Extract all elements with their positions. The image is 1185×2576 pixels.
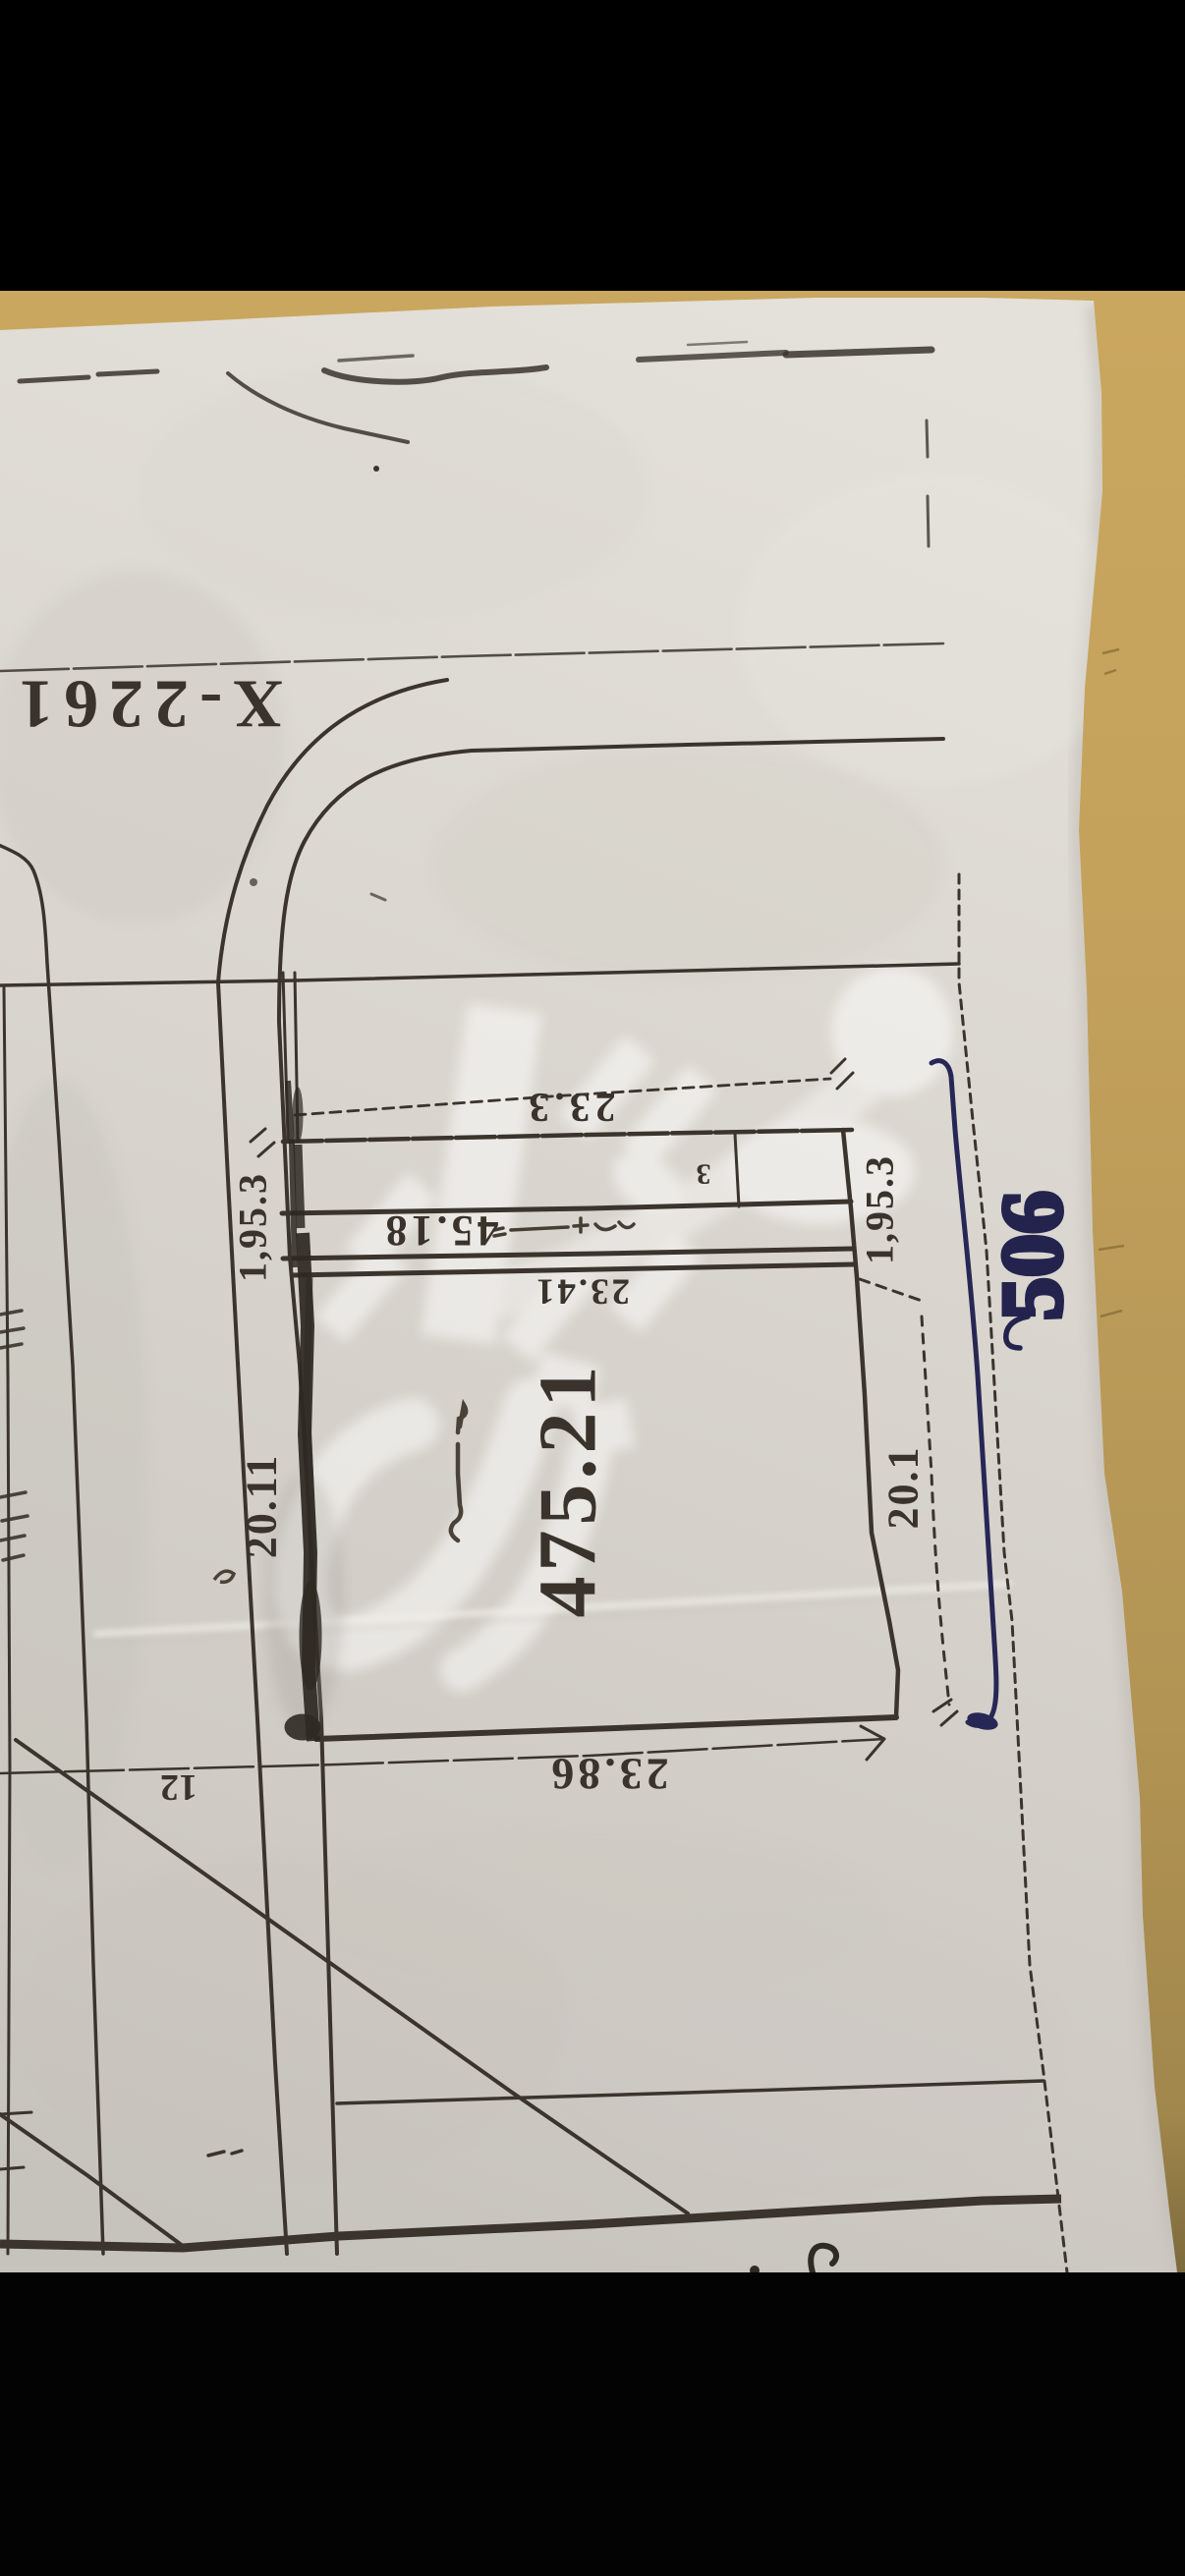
svg-text:1,95.3: 1,95.3 <box>858 1154 902 1264</box>
svg-text:506: 506 <box>986 1191 1081 1320</box>
svg-text:X-2261: X-2261 <box>8 666 283 742</box>
svg-text:23.3: 23.3 <box>524 1084 616 1129</box>
svg-text:20.11: 20.11 <box>238 1454 286 1559</box>
svg-text:475.21: 475.21 <box>523 1362 614 1618</box>
svg-text:23.86: 23.86 <box>547 1750 669 1800</box>
svg-text:20.1: 20.1 <box>879 1446 928 1530</box>
svg-text:45.18: 45.18 <box>382 1207 499 1256</box>
svg-text:12: 12 <box>160 1766 197 1808</box>
svg-text:1,95.3: 1,95.3 <box>231 1172 275 1282</box>
svg-text:3: 3 <box>697 1158 711 1191</box>
svg-text:23.41: 23.41 <box>534 1271 630 1312</box>
